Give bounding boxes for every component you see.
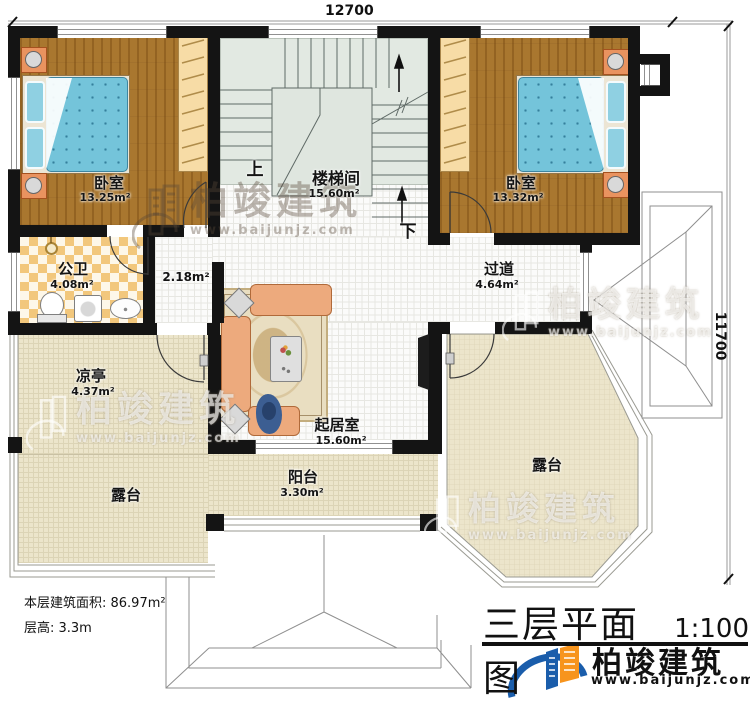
wall: [590, 26, 640, 38]
room-label-bedroom-left: 卧室: [94, 176, 124, 192]
bed-left-pillow: [25, 81, 45, 123]
wall: [208, 38, 220, 225]
window: [268, 26, 378, 38]
wall: [208, 440, 255, 454]
wall: [8, 38, 20, 77]
note-floor-height: 层高: 3.3m: [24, 617, 92, 636]
room-area-corridor: 4.64m²: [475, 279, 518, 291]
wall: [143, 225, 155, 323]
railing-post: [206, 514, 224, 531]
room-label-corridor: 过道: [484, 262, 514, 278]
window: [8, 252, 20, 312]
wall: [8, 225, 107, 237]
wall: [628, 38, 640, 233]
wall: [494, 233, 640, 245]
wardrobe-right: [440, 34, 470, 172]
room-label-terrace-right: 露台: [532, 458, 562, 474]
window: [57, 26, 167, 38]
wardrobe-left: [178, 34, 208, 172]
wall: [428, 233, 450, 245]
watermark: 柏竣建筑 www.baijunjz.com: [424, 492, 633, 548]
room-area-bedroom-right: 13.32m²: [492, 192, 543, 204]
floor-plan-canvas: 柏竣建筑 www.baijunjz.com 柏竣建筑 www.baijunjz.…: [0, 0, 750, 705]
room-label-living-room: 起居室: [314, 418, 359, 434]
toilet-tank: [37, 314, 67, 323]
bed-left-mattress: [46, 77, 128, 172]
wall: [167, 26, 268, 38]
brand-website: www.baijunjz.com: [591, 673, 750, 688]
room-label-bathroom: 公卫: [58, 262, 88, 278]
wall-bay: [660, 54, 670, 96]
room-area-stairwell: 15.60m²: [308, 188, 359, 200]
floor-balcony: [208, 454, 438, 516]
table-lamp: [607, 53, 624, 70]
sofa-back-section: [221, 316, 251, 412]
ceiling-lamp: [45, 242, 58, 255]
wall: [428, 38, 440, 233]
table-lamp: [607, 176, 624, 193]
table-lamp: [25, 177, 42, 194]
room-label-terrace-left: 露台: [111, 488, 141, 504]
room-area-hall-nook: 2.18m²: [162, 271, 209, 284]
watermark-text: 柏竣建筑: [468, 492, 633, 525]
washing-machine: [74, 295, 102, 322]
room-area-bedroom-left: 13.25m²: [79, 192, 130, 204]
bed-right-mattress: [518, 77, 604, 172]
railing-post: [8, 437, 22, 453]
room-area-living-room: 15.60m²: [315, 435, 366, 447]
room-label-stairwell: 楼梯间: [312, 171, 360, 188]
sofa-top-section: [250, 284, 332, 316]
dimension-top: 12700: [325, 3, 374, 19]
roof-bottom: [166, 535, 471, 688]
wall: [212, 262, 224, 323]
window: [480, 26, 590, 38]
dimension-right: 11700: [712, 306, 728, 366]
wall: [428, 334, 442, 444]
wall: [428, 322, 450, 334]
coffee-table: [270, 336, 302, 382]
window: [641, 64, 660, 86]
room-area-bathroom: 4.08m²: [50, 279, 93, 291]
watermark-url: www.baijunjz.com: [468, 528, 633, 543]
room-label-bedroom-right: 卧室: [506, 176, 536, 192]
wall: [8, 26, 57, 38]
wall: [150, 225, 184, 237]
wall: [208, 335, 221, 443]
stair-up-label: 上: [247, 162, 264, 180]
railing-post: [420, 514, 438, 531]
window: [8, 77, 20, 170]
wall: [8, 323, 157, 335]
bed-left-pillow: [25, 127, 45, 169]
bed-right-pillow: [606, 81, 626, 123]
stair-down-label: 下: [400, 224, 417, 242]
note-floor-area: 本层建筑面积: 86.97m²: [24, 592, 166, 611]
floor-terrace-left: [18, 455, 208, 563]
table-lamp: [25, 51, 42, 68]
room-label-balcony: 阳台: [288, 470, 318, 486]
sink: [110, 298, 141, 319]
wall: [208, 225, 220, 237]
person-figure-detail: [262, 402, 276, 420]
wall: [8, 170, 20, 252]
wall: [207, 323, 220, 335]
room-area-balcony: 3.30m²: [280, 487, 323, 499]
wall: [378, 26, 480, 38]
wall: [495, 322, 592, 334]
room-label-pavilion: 凉亭: [76, 369, 106, 385]
room-area-pavilion: 4.37m²: [71, 386, 114, 398]
window: [580, 252, 592, 312]
bed-right-pillow: [606, 127, 626, 169]
